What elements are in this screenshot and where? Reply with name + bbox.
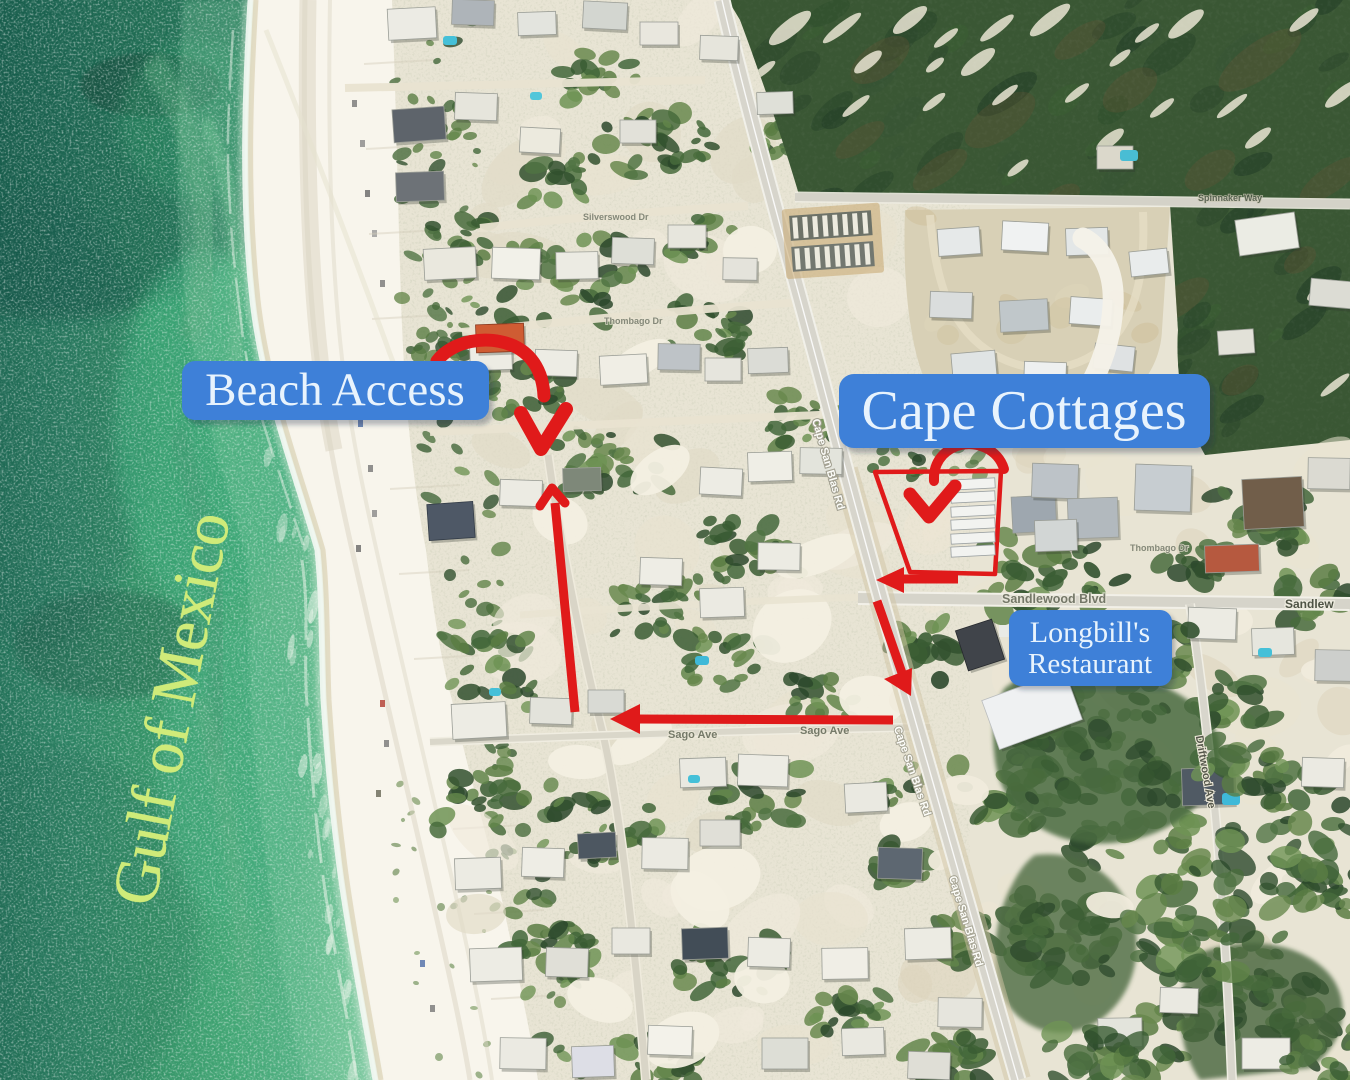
svg-text:Sandlew: Sandlew (1285, 597, 1334, 611)
svg-text:Restaurant: Restaurant (1028, 648, 1152, 680)
svg-text:Silverswood Dr: Silverswood Dr (583, 212, 649, 222)
svg-text:Spinnaker Way: Spinnaker Way (1198, 193, 1262, 203)
svg-text:Thombago Dr: Thombago Dr (604, 316, 663, 326)
svg-text:Thombago Dr: Thombago Dr (1130, 543, 1189, 553)
svg-text:Sago Ave: Sago Ave (800, 725, 849, 737)
svg-text:Sago Ave: Sago Ave (668, 729, 717, 741)
svg-text:Longbill's: Longbill's (1030, 616, 1150, 649)
svg-text:Beach Access: Beach Access (205, 364, 465, 416)
svg-text:Cape Cottages: Cape Cottages (861, 380, 1186, 442)
svg-text:Sandlewood Blvd: Sandlewood Blvd (1002, 592, 1106, 606)
